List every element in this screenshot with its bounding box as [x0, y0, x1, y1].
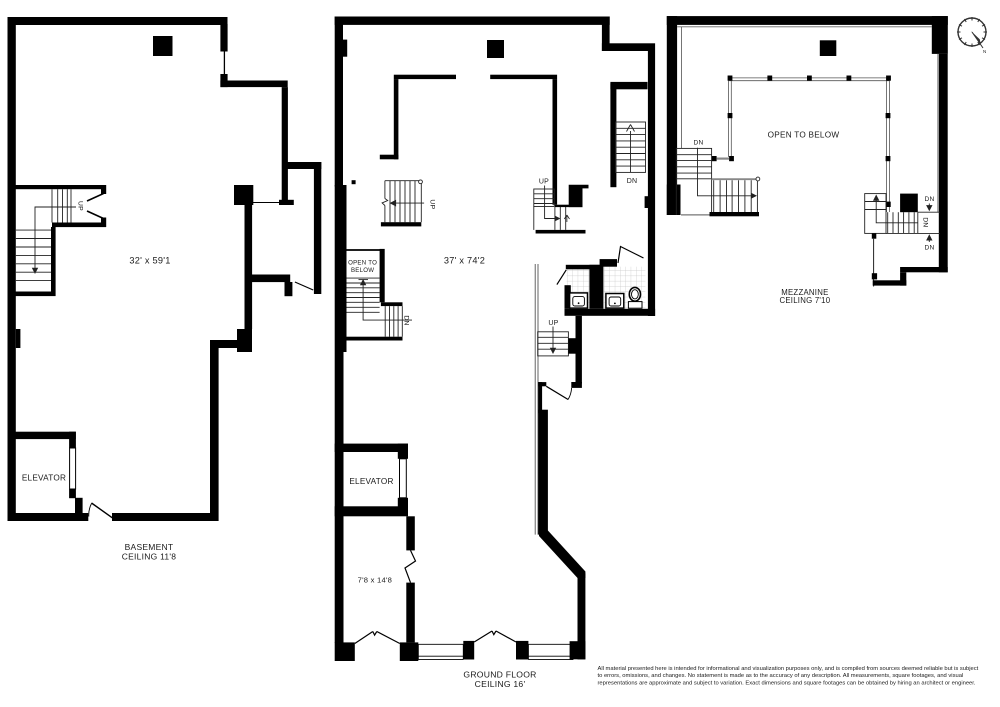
svg-text:All material presented here is: All material presented here is intended …	[598, 666, 979, 672]
svg-text:to errors, omissions, and chan: to errors, omissions, and changes. No st…	[598, 673, 964, 679]
svg-text:BASEMENT: BASEMENT	[125, 542, 174, 552]
svg-text:32' x 59'1: 32' x 59'1	[129, 255, 170, 265]
svg-text:DN: DN	[924, 244, 934, 251]
svg-text:UP: UP	[548, 320, 558, 327]
svg-text:37' x 74'2: 37' x 74'2	[444, 255, 485, 265]
svg-text:OPEN TO BELOW: OPEN TO BELOW	[768, 131, 840, 140]
svg-text:BELOW: BELOW	[351, 267, 374, 274]
svg-text:representations are approximat: representations are approximate and subj…	[598, 680, 976, 686]
svg-text:CEILING 11'8: CEILING 11'8	[122, 552, 177, 562]
svg-text:UP: UP	[429, 199, 436, 209]
svg-text:DN: DN	[693, 139, 703, 146]
svg-text:DN: DN	[627, 178, 638, 185]
svg-text:CEILING 7'10: CEILING 7'10	[779, 296, 830, 305]
svg-text:CEILING 16': CEILING 16'	[475, 679, 526, 689]
svg-text:DN: DN	[922, 217, 929, 227]
svg-text:GROUND FLOOR: GROUND FLOOR	[463, 670, 536, 680]
svg-text:ELEVATOR: ELEVATOR	[349, 477, 393, 486]
svg-text:UP: UP	[539, 178, 549, 185]
svg-text:ELEVATOR: ELEVATOR	[22, 474, 66, 483]
svg-text:7'8 x 14'8: 7'8 x 14'8	[358, 575, 393, 584]
svg-text:UP: UP	[77, 201, 84, 211]
svg-text:DN: DN	[403, 315, 410, 325]
svg-text:OPEN TO: OPEN TO	[348, 260, 377, 267]
svg-text:N: N	[983, 49, 986, 54]
svg-text:DN: DN	[924, 196, 934, 203]
